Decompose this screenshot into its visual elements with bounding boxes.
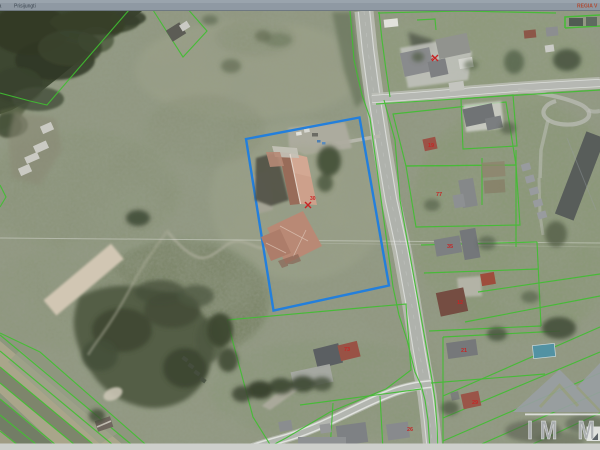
svg-text:REGIA V: REGIA V [577,4,598,10]
svg-text:Prisijungti: Prisijungti [14,4,36,10]
svg-text:ra: ra [0,4,2,10]
